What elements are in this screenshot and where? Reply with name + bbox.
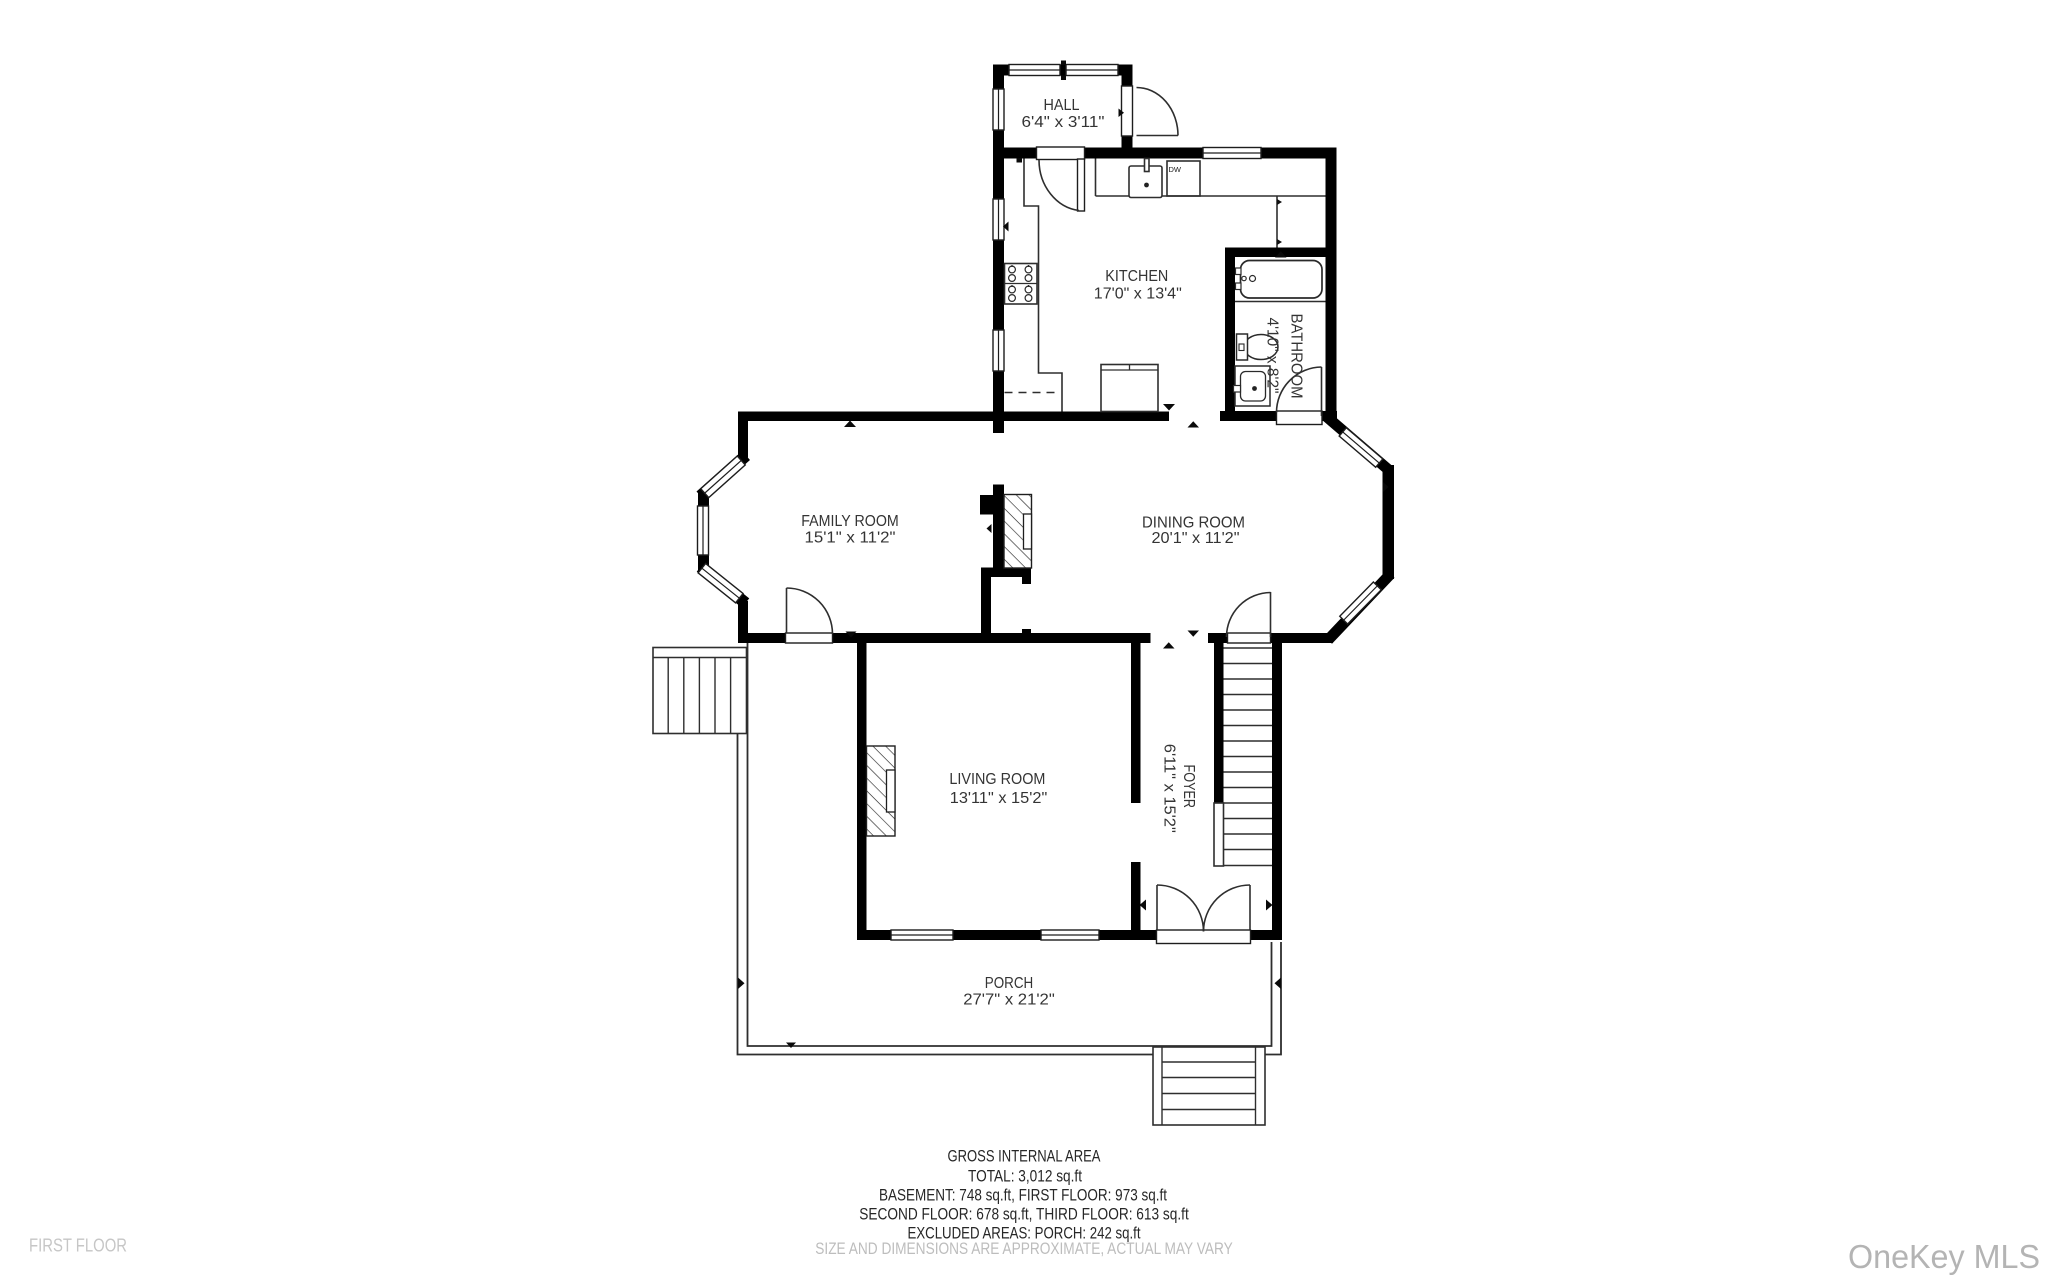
svg-text:27'7" x 21'2": 27'7" x 21'2": [963, 992, 1055, 1009]
svg-text:DW: DW: [1169, 165, 1182, 174]
svg-text:HALL: HALL: [1044, 97, 1080, 114]
svg-text:PORCH: PORCH: [985, 975, 1034, 992]
svg-text:6'4" x 3'11": 6'4" x 3'11": [1022, 114, 1105, 131]
svg-text:OneKey MLS: OneKey MLS: [1848, 1238, 2040, 1275]
svg-text:SECOND FLOOR: 678 sq.ft, THIRD: SECOND FLOOR: 678 sq.ft, THIRD FLOOR: 61…: [859, 1206, 1189, 1224]
svg-text:DINING ROOM: DINING ROOM: [1142, 515, 1245, 532]
svg-text:KITCHEN: KITCHEN: [1105, 268, 1168, 285]
svg-text:SIZE AND DIMENSIONS ARE APPROX: SIZE AND DIMENSIONS ARE APPROXIMATE, ACT…: [815, 1240, 1233, 1258]
svg-text:20'1" x 11'2": 20'1" x 11'2": [1152, 530, 1240, 547]
svg-text:LIVING ROOM: LIVING ROOM: [949, 771, 1045, 788]
svg-text:15'1" x 11'2": 15'1" x 11'2": [805, 530, 896, 547]
svg-text:17'0" x 13'4": 17'0" x 13'4": [1094, 286, 1182, 303]
svg-text:BASEMENT: 748 sq.ft, FIRST FLO: BASEMENT: 748 sq.ft, FIRST FLOOR: 973 sq…: [879, 1187, 1167, 1205]
svg-text:FOYER: FOYER: [1180, 765, 1197, 809]
svg-text:TOTAL: 3,012 sq.ft: TOTAL: 3,012 sq.ft: [968, 1168, 1082, 1186]
svg-text:13'11" x 15'2": 13'11" x 15'2": [950, 790, 1048, 807]
svg-text:GROSS INTERNAL AREA: GROSS INTERNAL AREA: [948, 1148, 1101, 1166]
svg-text:BATHROOM: BATHROOM: [1288, 314, 1305, 399]
svg-text:FAMILY ROOM: FAMILY ROOM: [801, 513, 899, 530]
svg-text:FIRST FLOOR: FIRST FLOOR: [29, 1235, 127, 1256]
svg-text:4'10" x 8'2": 4'10" x 8'2": [1264, 318, 1281, 394]
svg-text:6'11" x 15'2": 6'11" x 15'2": [1161, 744, 1178, 833]
